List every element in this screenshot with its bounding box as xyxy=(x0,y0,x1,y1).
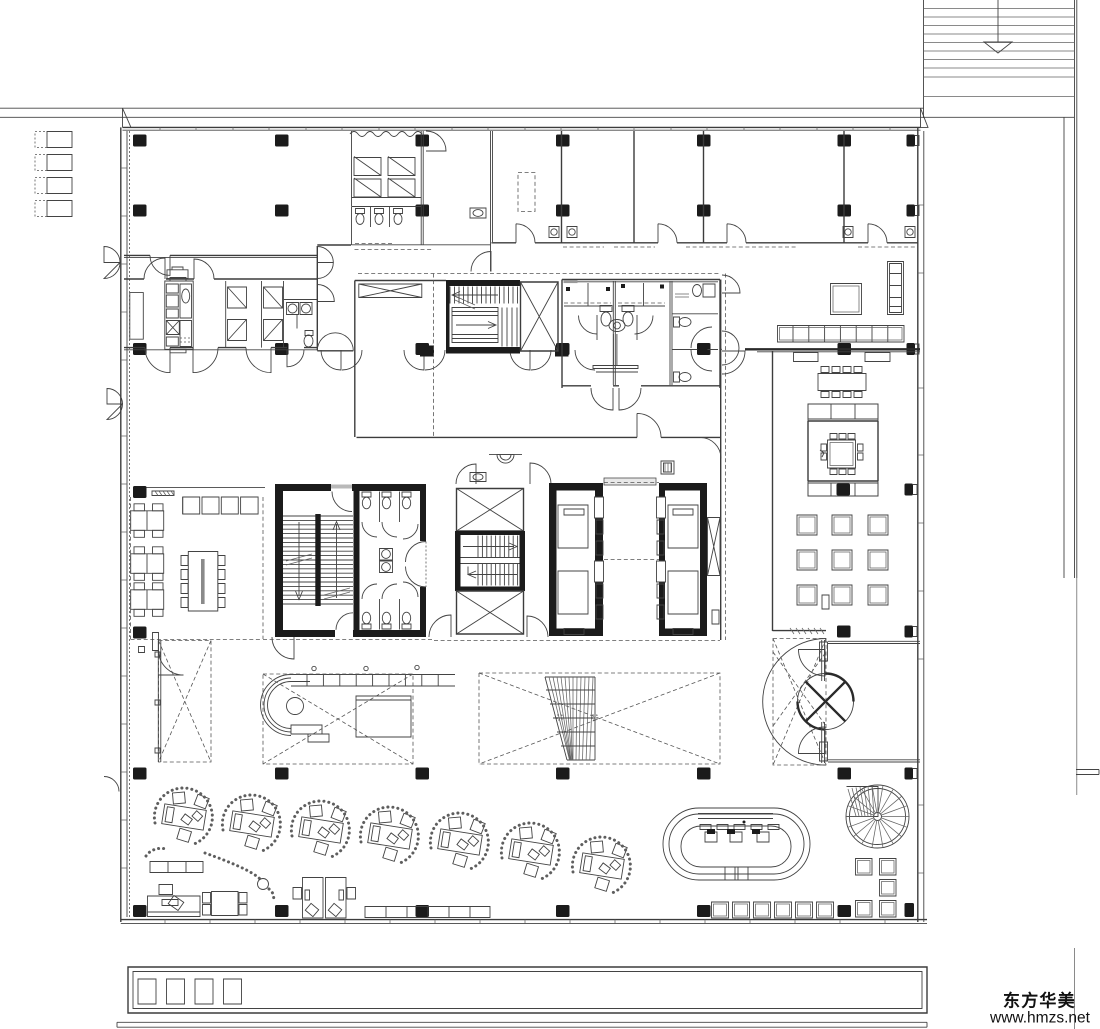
svg-text:www.hmzs.net: www.hmzs.net xyxy=(989,1010,1091,1027)
svg-text:东方华美: 东方华美 xyxy=(1003,991,1076,1011)
